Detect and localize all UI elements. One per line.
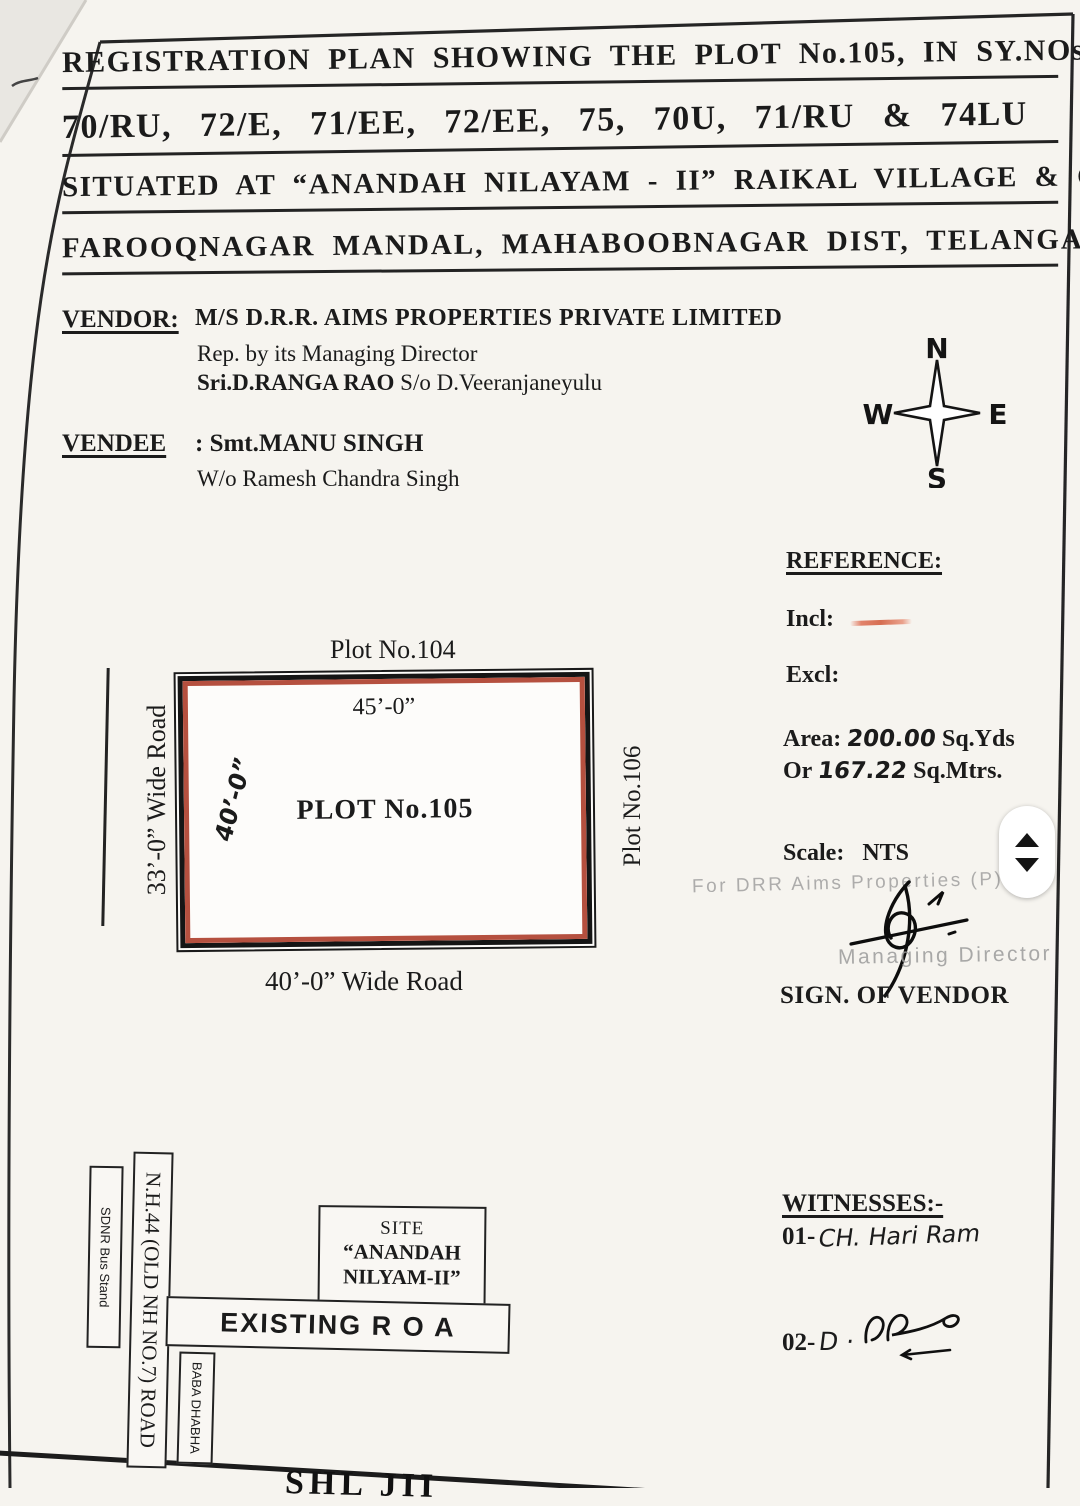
existing-road-box: EXISTING R O A — [165, 1296, 510, 1354]
scroll-up-icon[interactable] — [1015, 833, 1039, 847]
or-label: Or — [783, 758, 812, 784]
compass-east-label: E — [988, 398, 1007, 431]
witness-1-row: 01- CH. Hari Ram — [782, 1222, 980, 1251]
dhabha-label: BABA DHABHA — [187, 1362, 204, 1454]
plot-top-dimension: 45’-0” — [188, 692, 580, 723]
title-line-4: FAROOQNAGAR MANDAL, MAHABOOBNAGAR DIST, … — [62, 224, 1058, 276]
reference-incl-label: Incl: — [786, 606, 834, 633]
compass-west-label: W — [863, 398, 894, 431]
bottom-road-label: 40’-0” Wide Road — [265, 966, 463, 997]
scale-value: NTS — [862, 840, 909, 866]
witness-2-number: 02- — [782, 1329, 815, 1356]
area-metric-unit: Sq.Mtrs. — [913, 758, 1002, 784]
witness-2-name-handwritten: D · — [818, 1327, 857, 1356]
vendor-label: VENDOR: — [62, 306, 179, 334]
witnesses-heading: WITNESSES:- — [782, 1190, 943, 1218]
sign-of-vendor-caption: SIGN. OF VENDOR — [780, 982, 1009, 1010]
reference-excl-label: Excl: — [786, 662, 839, 689]
highway-road-label: N.H.44 (OLD NH NO.7) ROAD — [134, 1172, 165, 1448]
dhabha-box: BABA DHABHA — [177, 1352, 216, 1465]
reference-area-line: Area: 200.00 Sq.Yds — [783, 726, 1015, 753]
plot-104-label: Plot No.104 — [330, 635, 456, 665]
area-unit: Sq.Yds — [942, 726, 1015, 752]
scale-label: Scale: — [783, 840, 844, 866]
vendor-principal: Sri.D.RANGA RAO S/o D.Veeranjaneyulu — [197, 370, 602, 396]
reference-area-metric-line: Or 167.22 Sq.Mtrs. — [783, 758, 1002, 785]
site-box-line-3: NILYAM-II” — [320, 1264, 484, 1291]
site-box-line-1: SITE — [320, 1217, 484, 1241]
compass-north-label: N — [925, 338, 948, 365]
witness-2-signature — [858, 1308, 978, 1364]
vendor-stamp-role: Managing Director — [838, 942, 1052, 970]
compass-rose: N S W E — [860, 338, 1015, 488]
vendor-company: M/S D.R.R. AIMS PROPERTIES PRIVATE LIMIT… — [195, 305, 782, 332]
reference-scale-line: Scale: NTS — [783, 840, 909, 867]
existing-road-label: EXISTING R O A — [220, 1307, 456, 1343]
area-metric-value-handwritten: 167.22 — [817, 758, 909, 784]
area-label: Area: — [783, 726, 841, 752]
vendor-signature — [845, 878, 975, 998]
scroll-widget[interactable] — [999, 806, 1055, 898]
bus-stand-box: SDNR Bus Stand — [86, 1166, 123, 1349]
vendor-principal-father: S/o D.Veeranjaneyulu — [394, 370, 602, 395]
bus-stand-label: SDNR Bus Stand — [97, 1207, 114, 1308]
vendee-name: : Smt.MANU SINGH — [195, 430, 423, 458]
vendor-rep-line: Rep. by its Managing Director — [197, 341, 477, 367]
bottom-cutoff-text: SHL JII — [285, 1464, 439, 1506]
vendee-relation: W/o Ramesh Chandra Singh — [197, 466, 460, 492]
reference-heading: REFERENCE: — [786, 548, 942, 575]
vendor-principal-name: Sri.D.RANGA RAO — [197, 370, 394, 395]
area-value-handwritten: 200.00 — [846, 726, 938, 752]
left-road-label: 33’-0” Wide Road — [142, 665, 172, 935]
witness-1-number: 01- — [782, 1223, 815, 1250]
plot-105-rectangle: 45’-0” PLOT No.105 40’-0” — [174, 668, 597, 952]
site-box-line-2: “ANANDAH — [320, 1239, 484, 1266]
plot-106-label: Plot No.106 — [619, 721, 647, 891]
compass-south-label: S — [927, 462, 947, 488]
witness-1-name-handwritten: CH. Hari Ram — [817, 1219, 983, 1253]
site-box: SITE “ANANDAH NILYAM-II” — [317, 1205, 486, 1309]
vendee-label: VENDEE — [62, 430, 166, 458]
witness-2-row: 02- D · — [782, 1308, 978, 1364]
scroll-down-icon[interactable] — [1015, 858, 1039, 872]
